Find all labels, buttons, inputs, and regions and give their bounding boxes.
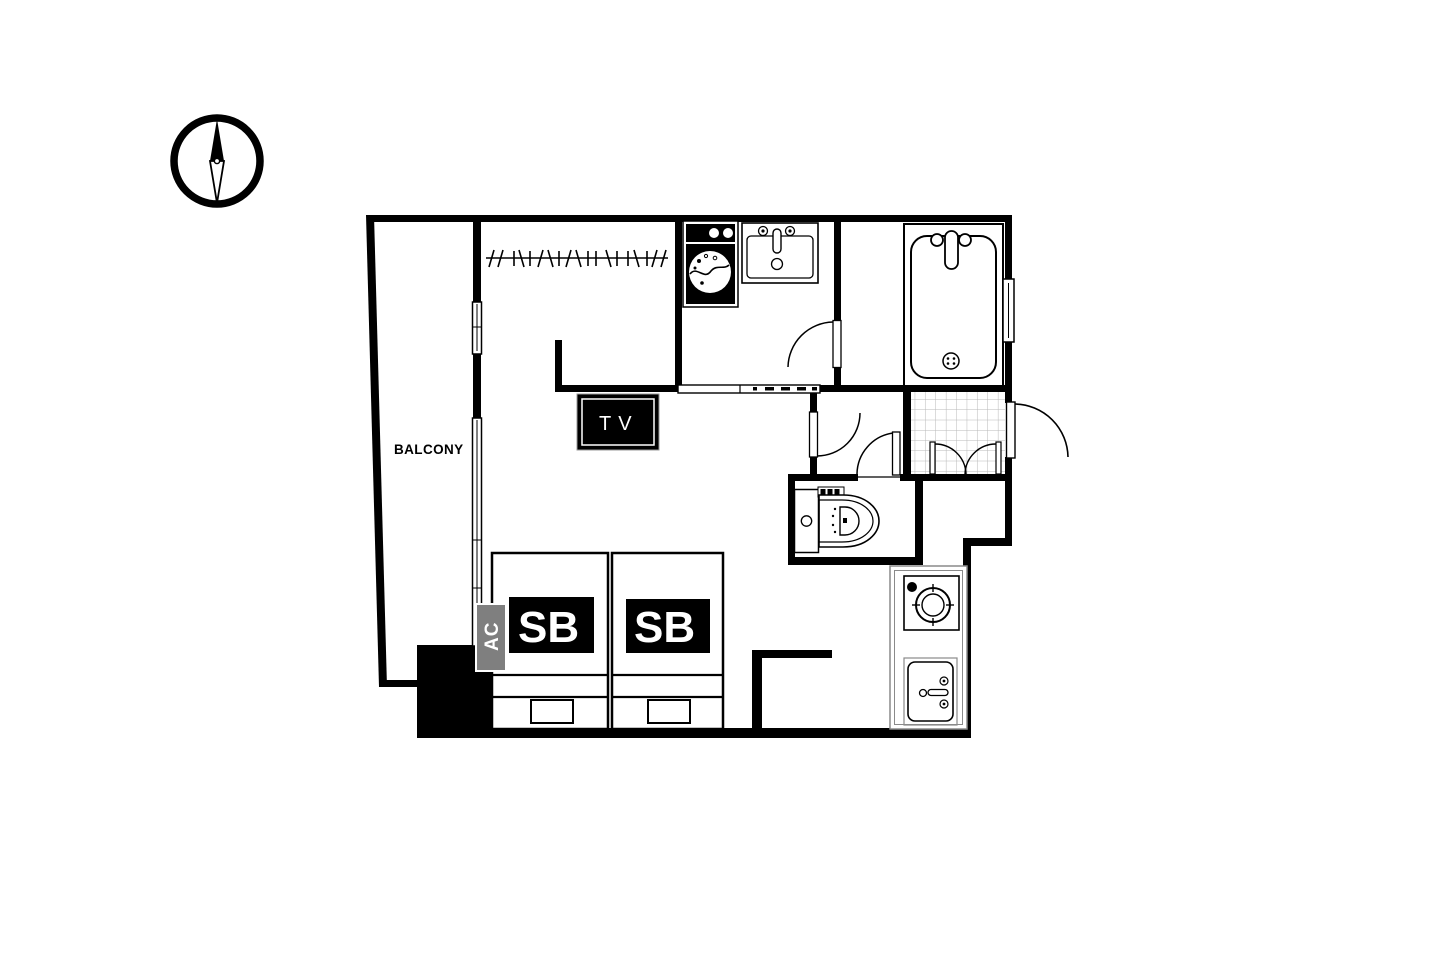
wall-segment <box>834 215 841 321</box>
wall-segment-angled <box>366 215 387 687</box>
wall-segment <box>473 353 481 418</box>
folding-door-icon <box>678 385 820 393</box>
vanity-sink-icon <box>742 223 818 283</box>
floor-plan-page: BALCONY <box>0 0 1440 960</box>
toilet-icon <box>795 487 880 553</box>
bathroom <box>904 224 1014 386</box>
kitchen <box>890 566 967 729</box>
tv-icon: TV <box>577 394 659 450</box>
wall-segment <box>675 215 682 392</box>
bed-label: SB <box>518 603 579 652</box>
wall-segment <box>1005 215 1012 281</box>
wall-segment <box>752 650 762 738</box>
wall-segment <box>473 215 481 303</box>
ac-label: AC <box>482 622 503 651</box>
window-icon <box>1003 279 1014 342</box>
wall-segment <box>788 474 858 481</box>
wall-segment <box>788 557 923 565</box>
bathtub-icon <box>904 224 1003 386</box>
wall-segment <box>752 650 832 658</box>
compass-icon <box>174 118 260 204</box>
entry-tiles <box>911 392 1005 474</box>
wall-segment <box>555 340 562 392</box>
wall-segment <box>555 385 682 392</box>
tv-label: TV <box>599 413 639 435</box>
washing-machine-icon <box>683 221 738 307</box>
closet <box>486 250 668 267</box>
wall-segment <box>911 474 1012 481</box>
wall-segment <box>820 385 903 392</box>
floor-plan-drawing: BALCONY <box>0 0 1440 960</box>
door-swing-icon <box>788 321 841 368</box>
wall-segment <box>1005 457 1012 546</box>
hallway <box>810 412 901 475</box>
sliding-door-icon <box>473 302 482 646</box>
balcony: BALCONY <box>394 302 482 646</box>
entrance-door-icon <box>1007 402 1069 458</box>
balcony-label: BALCONY <box>394 442 464 457</box>
hanger-rod-icon <box>486 250 668 267</box>
toilet-room <box>795 487 880 553</box>
wall-segment <box>915 474 923 565</box>
living-room: TV SB SB AC <box>476 394 723 729</box>
bed-label: SB <box>634 603 695 652</box>
door-swing-icon <box>810 412 861 457</box>
stove-burner-icon <box>904 576 959 630</box>
laundry-room <box>678 221 841 393</box>
kitchen-sink-icon <box>904 658 957 725</box>
wall-segment <box>810 392 817 413</box>
door-swing-icon <box>857 432 900 475</box>
wall-segment <box>903 385 911 481</box>
single-bed-icon: SB <box>612 553 723 729</box>
wall-segment <box>1005 340 1012 403</box>
single-bed-icon: SB <box>492 553 608 729</box>
entry <box>911 392 1068 474</box>
ac-unit-icon: AC <box>476 604 506 671</box>
